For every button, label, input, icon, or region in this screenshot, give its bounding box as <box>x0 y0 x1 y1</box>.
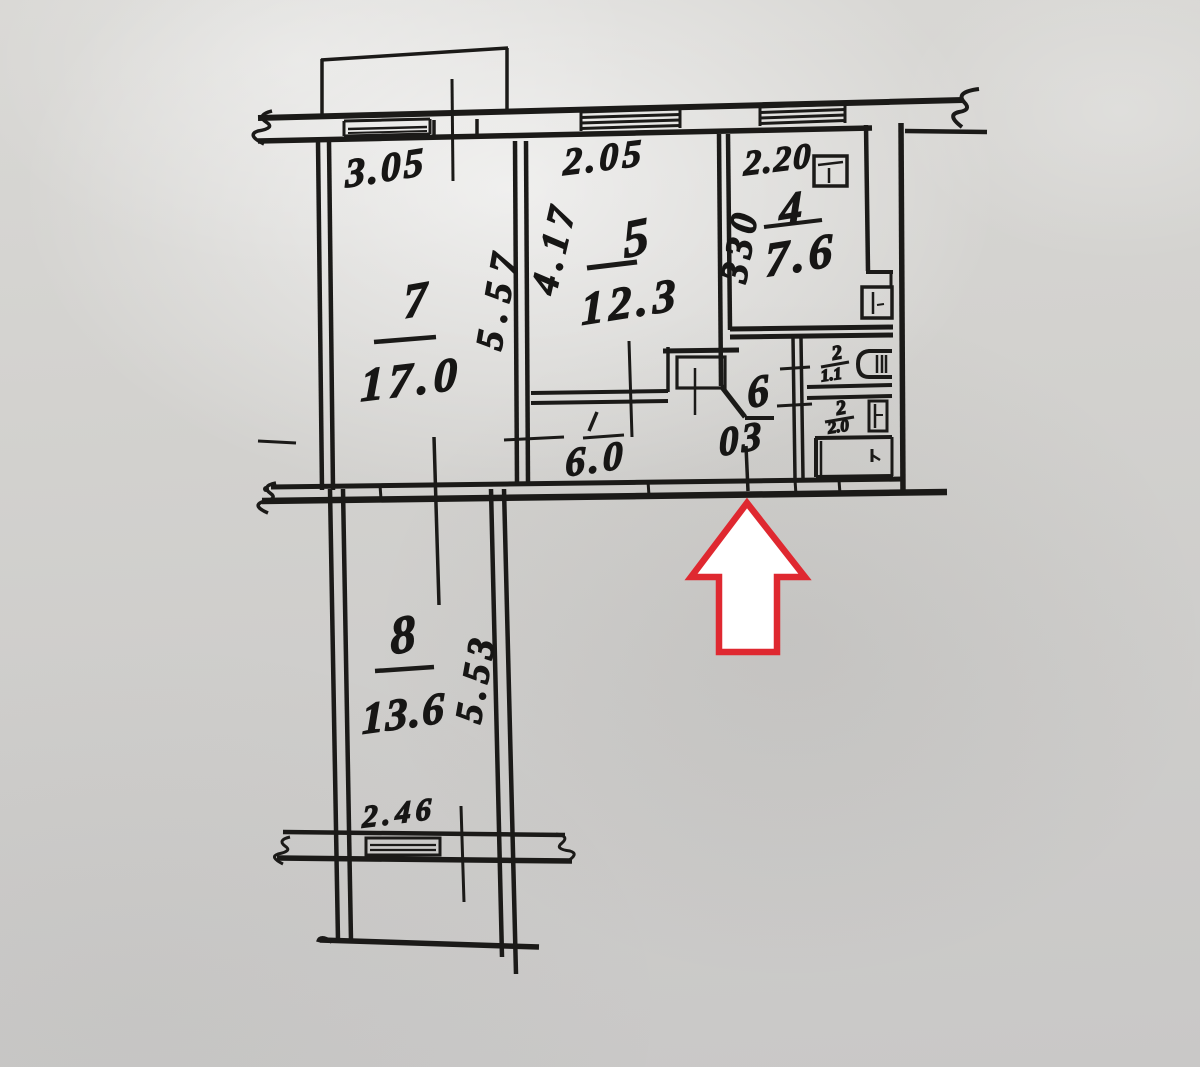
svg-text:13.6: 13.6 <box>362 683 446 744</box>
svg-text:2.05: 2.05 <box>562 132 646 184</box>
svg-text:4.17: 4.17 <box>523 197 585 300</box>
svg-text:2.0: 2.0 <box>825 416 850 438</box>
svg-text:7: 7 <box>403 271 430 329</box>
svg-text:3.05: 3.05 <box>344 138 427 196</box>
svg-text:17.0: 17.0 <box>360 348 462 413</box>
svg-text:8: 8 <box>388 603 417 667</box>
svg-text:2.46: 2.46 <box>361 790 436 834</box>
svg-text:6: 6 <box>746 364 772 418</box>
svg-text:2.20: 2.20 <box>743 136 813 184</box>
svg-text:6.0: 6.0 <box>565 432 626 486</box>
svg-text:03: 03 <box>718 412 765 465</box>
svg-text:5.57: 5.57 <box>468 241 528 353</box>
svg-text:12.3: 12.3 <box>581 268 681 335</box>
svg-text:2: 2 <box>829 341 844 365</box>
svg-text:4: 4 <box>778 181 803 236</box>
svg-text:7.6: 7.6 <box>765 223 837 288</box>
svg-text:5: 5 <box>621 206 650 270</box>
svg-text:1.1: 1.1 <box>819 364 843 386</box>
